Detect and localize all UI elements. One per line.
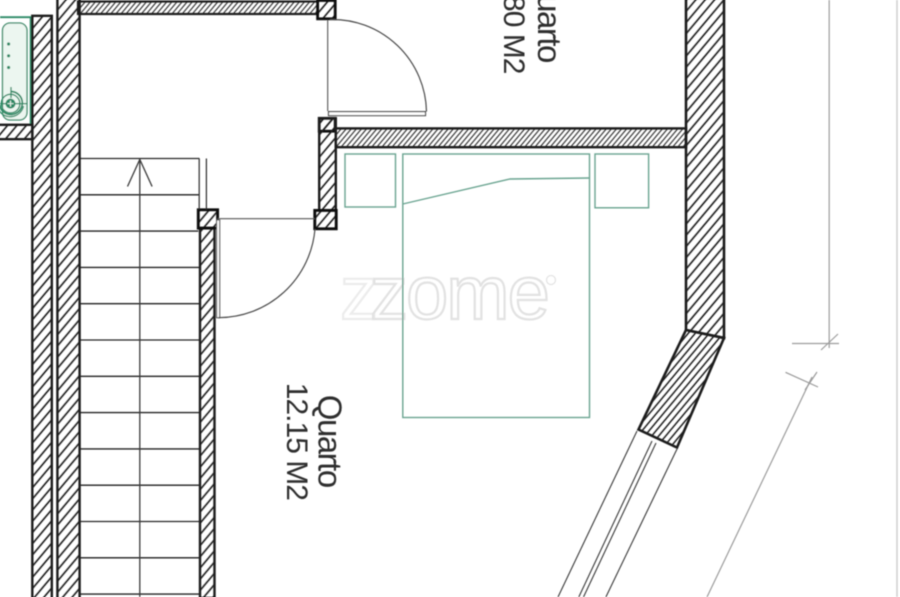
svg-text:Quarto: Quarto: [531, 0, 568, 62]
svg-text:8.80 M2: 8.80 M2: [497, 0, 530, 74]
svg-text:Quarto: Quarto: [312, 395, 349, 487]
svg-text:zome: zome: [370, 251, 548, 336]
svg-text:12.15 M2: 12.15 M2: [280, 383, 313, 500]
